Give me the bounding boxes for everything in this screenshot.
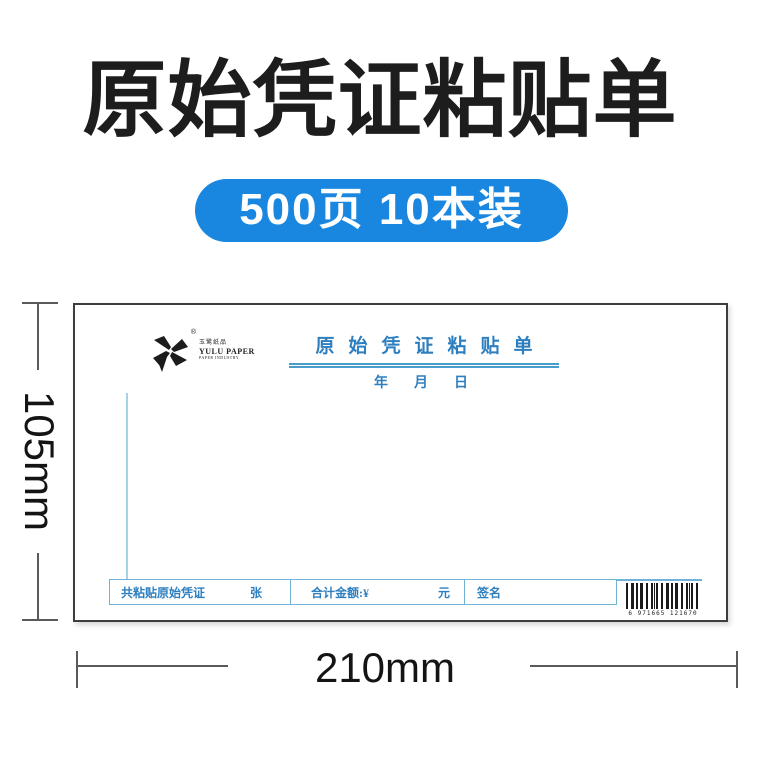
pinwheel-logo-icon: ® bbox=[148, 330, 194, 374]
dim-width-label: 210mm bbox=[315, 644, 455, 692]
pasted-count-label: 共粘贴原始凭证 bbox=[121, 584, 205, 601]
barcode-bars-icon bbox=[626, 583, 700, 609]
signature-label: 签名 bbox=[477, 584, 501, 601]
brand-name-cn: 玉鹭纸品 bbox=[199, 340, 255, 347]
dim-width-left-tick bbox=[76, 651, 78, 688]
paste-area-guide-line bbox=[126, 393, 128, 579]
form-date-line: 年 月 日 bbox=[289, 372, 559, 392]
form-title-double-rule bbox=[289, 363, 559, 368]
brand-industry-line: PAPER INDUSTRY bbox=[199, 356, 255, 361]
dim-height-line-upper bbox=[37, 303, 39, 370]
pasted-count-unit: 张 bbox=[250, 584, 262, 601]
total-amount-cell: 合计金额:¥ 元 bbox=[291, 580, 465, 604]
dim-height-bottom-tick bbox=[22, 619, 58, 621]
product-title: 原始凭证粘贴单 bbox=[0, 48, 760, 152]
total-amount-unit: 元 bbox=[438, 584, 450, 601]
total-amount-label: 合计金额:¥ bbox=[311, 584, 369, 601]
brand-logo: ® 玉鹭纸品 YULU PAPER PAPER INDUSTRY bbox=[148, 330, 255, 374]
dim-height-top-tick bbox=[22, 302, 58, 304]
dim-height-line-lower bbox=[37, 553, 39, 620]
footer-rule-extension bbox=[616, 579, 702, 581]
pasted-count-cell: 共粘贴原始凭证 张 bbox=[110, 580, 291, 604]
form-header: 原始凭证粘贴单 年 月 日 bbox=[289, 331, 559, 392]
brand-text: 玉鹭纸品 YULU PAPER PAPER INDUSTRY bbox=[199, 340, 255, 361]
pack-size-badge: 500页 10本装 bbox=[195, 179, 568, 242]
barcode: 6 971665 121670 bbox=[626, 583, 700, 617]
signature-cell: 签名 bbox=[465, 580, 616, 604]
voucher-sheet: ® 玉鹭纸品 YULU PAPER PAPER INDUSTRY 原始凭证粘贴单… bbox=[73, 303, 728, 622]
dim-width-line-right bbox=[530, 665, 737, 667]
barcode-digits: 6 971665 121670 bbox=[626, 610, 700, 617]
dim-width-right-tick bbox=[736, 651, 738, 688]
form-title: 原始凭证粘贴单 bbox=[289, 331, 573, 358]
dim-height-label: 105mm bbox=[15, 391, 63, 531]
dim-width-line-left bbox=[77, 665, 228, 667]
registered-mark: ® bbox=[191, 329, 196, 336]
footer-summary-row: 共粘贴原始凭证 张 合计金额:¥ 元 签名 bbox=[109, 579, 617, 605]
